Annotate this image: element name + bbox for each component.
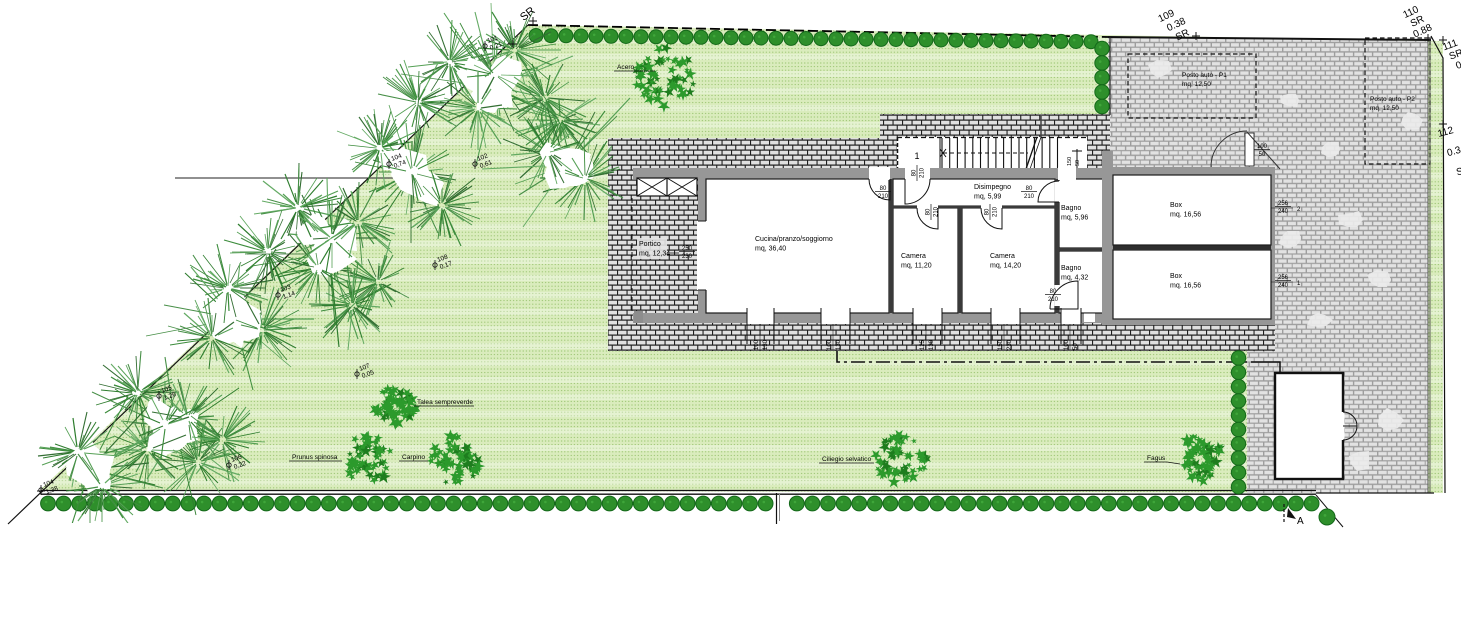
svg-text:Carpino: Carpino — [402, 454, 425, 461]
svg-text:Fagus: Fagus — [1147, 455, 1166, 462]
svg-text:230: 230 — [682, 254, 693, 260]
svg-text:150: 150 — [1067, 157, 1073, 166]
svg-text:100: 100 — [754, 339, 760, 350]
svg-text:mq, 12,50: mq, 12,50 — [1182, 81, 1211, 88]
svg-text:150: 150 — [998, 339, 1004, 350]
svg-text:Posto auto - P1: Posto auto - P1 — [1182, 72, 1227, 79]
svg-text:250: 250 — [682, 246, 693, 252]
svg-text:256: 256 — [1278, 275, 1289, 281]
svg-text:mq, 5,96: mq, 5,96 — [1061, 215, 1088, 222]
svg-text:Bagno: Bagno — [1061, 205, 1081, 212]
svg-text:Ciliegio selvatico: Ciliegio selvatico — [822, 456, 871, 463]
svg-text:230: 230 — [1007, 339, 1013, 350]
svg-text:256: 256 — [1278, 201, 1289, 207]
svg-text:Talea sempreverde: Talea sempreverde — [417, 399, 473, 406]
svg-text:240: 240 — [1278, 209, 1289, 215]
svg-text:210: 210 — [934, 206, 940, 217]
svg-text:80: 80 — [985, 208, 991, 215]
svg-text:Acero: Acero — [617, 64, 635, 71]
svg-text:100: 100 — [1064, 339, 1070, 350]
svg-text:mq, 5,99: mq, 5,99 — [974, 194, 1001, 201]
svg-text:mq, 4,32: mq, 4,32 — [1061, 275, 1088, 282]
svg-text:Bagno: Bagno — [1061, 265, 1081, 272]
svg-text:80: 80 — [912, 169, 918, 176]
svg-text:A: A — [1297, 516, 1304, 527]
svg-text:210: 210 — [878, 194, 889, 200]
svg-text:130: 130 — [763, 339, 769, 350]
svg-text:240: 240 — [1278, 283, 1289, 289]
svg-text:80: 80 — [926, 208, 932, 215]
svg-text:100: 100 — [827, 339, 833, 350]
svg-text:mq, 36,40: mq, 36,40 — [755, 246, 786, 253]
svg-text:Box: Box — [1170, 202, 1183, 209]
svg-text:130: 130 — [836, 339, 842, 350]
svg-text:SR: SR — [1455, 164, 1461, 178]
svg-text:Prunus spinosa: Prunus spinosa — [292, 454, 338, 461]
svg-text:Disimpegno: Disimpegno — [974, 184, 1011, 191]
svg-text:Camera: Camera — [990, 253, 1015, 260]
svg-text:50: 50 — [1075, 160, 1081, 166]
svg-text:Box: Box — [1170, 273, 1183, 280]
svg-text:210: 210 — [1024, 194, 1035, 200]
svg-text:210: 210 — [993, 206, 999, 217]
svg-text:0.3: 0.3 — [1446, 145, 1461, 159]
svg-text:130: 130 — [929, 339, 935, 350]
svg-text:1: 1 — [914, 151, 919, 161]
svg-text:50: 50 — [1073, 343, 1079, 350]
svg-text:80: 80 — [1050, 289, 1057, 295]
svg-text:210: 210 — [920, 167, 926, 178]
svg-text:Camera: Camera — [901, 253, 926, 260]
svg-text:50: 50 — [1259, 152, 1266, 158]
svg-text:mq, 12,50: mq, 12,50 — [1370, 105, 1399, 112]
svg-text:mq, 14,20: mq, 14,20 — [990, 263, 1021, 270]
svg-text:125: 125 — [920, 339, 926, 350]
svg-text:Posto auto - P2: Posto auto - P2 — [1370, 96, 1415, 103]
svg-text:210: 210 — [1048, 297, 1059, 303]
svg-text:Cucina/pranzo/soggiorno: Cucina/pranzo/soggiorno — [755, 236, 833, 243]
svg-text:mq. 16,56: mq. 16,56 — [1170, 283, 1201, 290]
svg-text:80: 80 — [880, 186, 887, 192]
svg-text:100: 100 — [1257, 144, 1268, 150]
svg-text:mq. 16,56: mq. 16,56 — [1170, 212, 1201, 219]
svg-text:80: 80 — [1026, 186, 1033, 192]
svg-text:Portico: Portico — [639, 241, 661, 248]
svg-text:mq, 11,20: mq, 11,20 — [901, 263, 932, 270]
svg-text:mq, 12,34: mq, 12,34 — [639, 251, 670, 258]
